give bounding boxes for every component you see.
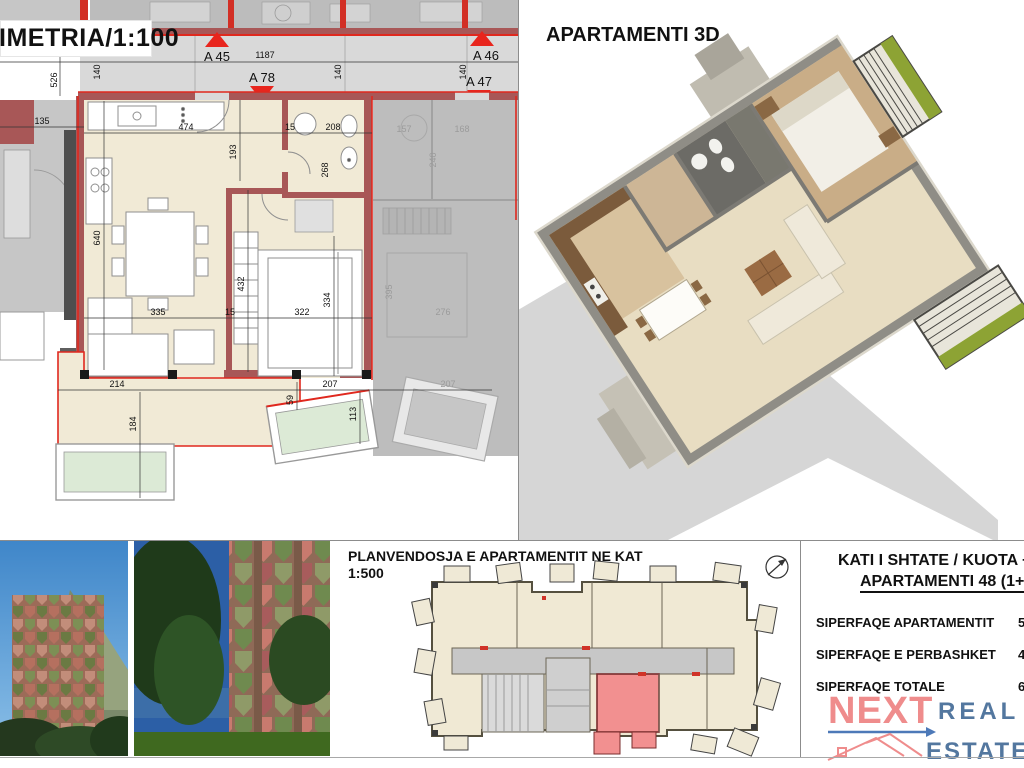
dim-label: 140 (458, 64, 468, 79)
top-wall (78, 92, 518, 100)
dim-label: 334 (322, 292, 332, 307)
dim-label: 168 (454, 124, 469, 134)
dining-table (126, 212, 194, 296)
logo-graphics (826, 726, 1024, 766)
building-photo-1 (0, 540, 128, 756)
dim-label: 59 (285, 395, 295, 405)
dim-label: 113 (348, 407, 358, 421)
info-heading-apartment: APARTAMENTI 48 (1+1 (860, 573, 1024, 593)
marker-a45-label: A 45 (204, 49, 230, 64)
info-value: 5 (1018, 615, 1024, 630)
bottom-border (0, 757, 1024, 758)
highlighted-balcony (632, 732, 656, 748)
vertical-divider-top (518, 0, 519, 540)
marker-a46-label: A 46 (473, 48, 499, 63)
dim-label: 432 (236, 276, 246, 291)
key-plan (412, 561, 781, 756)
info-heading-floor: KATI I SHTATE / KUOTA + (838, 552, 1024, 570)
stair-core (482, 674, 544, 732)
north-compass-icon (766, 556, 788, 578)
door-opening (195, 92, 229, 100)
vertical-divider-bottom (800, 540, 801, 757)
dim-label: 395 (384, 284, 394, 299)
logo-word-real: REAL (938, 698, 1019, 726)
building-photo-2 (134, 540, 330, 756)
dim-label: 1187 (255, 50, 274, 60)
dim-label: 640 (92, 230, 102, 245)
info-value: 4 (1018, 647, 1024, 662)
info-row-common-area: SIPERFAQE E PERBASHKET 4 (816, 647, 1024, 662)
dim-label: 214 (109, 379, 124, 389)
dim-label: 276 (435, 307, 450, 317)
site-plan-drawing (332, 540, 800, 757)
dim-label: 157 (396, 124, 411, 134)
marker-a47-label: A 47 (466, 74, 492, 89)
site-plan-scale: 1:500 (348, 565, 384, 581)
dim-label: 207 (322, 379, 337, 389)
dim-label: 474 (178, 122, 193, 132)
dim-label: 208 (325, 122, 340, 132)
dim-label: 193 (228, 144, 238, 159)
logo-arrow-icon (926, 727, 936, 737)
floor-plan-drawing: A 45 A 78 A 46 A 47 (0, 0, 518, 540)
dim-label: 15 (225, 307, 235, 317)
toilet (341, 115, 357, 137)
corridor (452, 648, 734, 674)
apartment-3d-panel: APARTAMENTI 3D (518, 0, 1024, 540)
site-plan-title: PLANVENDOSJA E APARTAMENTIT NE KAT (348, 548, 643, 564)
highlighted-apartment (597, 674, 659, 732)
floor-plan-panel: A 45 A 78 A 46 A 47 (0, 0, 518, 540)
dim-label: 335 (150, 307, 165, 317)
site-plan-panel (332, 540, 800, 757)
apartment-3d-title: APARTAMENTI 3D (546, 24, 720, 47)
info-row-apartment-area: SIPERFAQE APARTAMENTIT 5 (816, 615, 1024, 630)
building-photo-2-image (134, 540, 330, 756)
dim-label: 15 (285, 122, 295, 132)
dim-label: 135 (34, 116, 49, 126)
door-opening (455, 92, 489, 100)
plan-title-box: IMETRIA/1:100 (0, 20, 152, 57)
info-label: SIPERFAQE APARTAMENTIT (816, 615, 994, 630)
horizontal-divider (0, 540, 1024, 541)
lift-core (546, 658, 590, 732)
dim-label: 140 (92, 64, 102, 79)
lawn (134, 732, 330, 756)
apartment-3d-render (518, 0, 1024, 540)
bath-sink (294, 113, 316, 135)
info-value: 6 (1018, 679, 1024, 694)
building-photo-1-image (0, 540, 128, 756)
marker-a78-label: A 78 (249, 70, 275, 85)
dim-label: 207 (440, 379, 455, 389)
plan-title: IMETRIA/1:100 (0, 24, 179, 53)
dim-label: 184 (128, 416, 138, 431)
highlighted-balcony (594, 732, 620, 754)
dim-label: 268 (320, 162, 330, 177)
info-label: SIPERFAQE E PERBASHKET (816, 647, 996, 662)
dim-label: 140 (333, 64, 343, 79)
dim-label: 322 (294, 307, 309, 317)
dim-label: 240 (428, 152, 438, 167)
dim-label: 526 (49, 72, 59, 87)
plan-sheet-page: A 45 A 78 A 46 A 47 (0, 0, 1024, 768)
